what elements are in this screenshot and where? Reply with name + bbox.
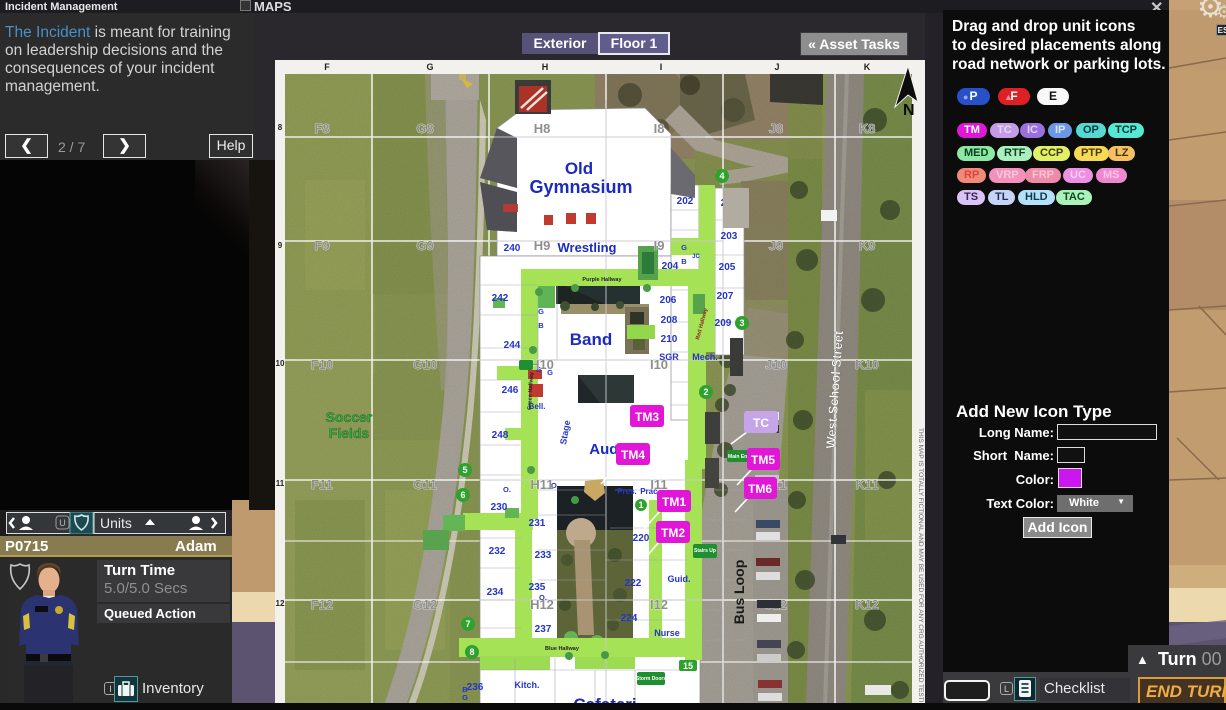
svg-text:I9: I9 [654, 238, 665, 253]
svg-text:Stairs Up: Stairs Up [694, 548, 716, 554]
svg-text:I12: I12 [650, 597, 668, 612]
svg-text:Band: Band [570, 330, 613, 349]
svg-text:H9: H9 [534, 238, 551, 253]
svg-text:Old: Old [565, 159, 593, 178]
svg-text:TM4: TM4 [621, 448, 645, 462]
svg-text:F12: F12 [311, 597, 333, 612]
svg-text:4: 4 [719, 171, 724, 181]
svg-text:B: B [681, 257, 687, 266]
svg-text:H8: H8 [534, 121, 551, 136]
svg-text:231: 231 [529, 518, 546, 529]
svg-text:Purple Hallway: Purple Hallway [582, 277, 622, 283]
svg-text:F9: F9 [314, 238, 329, 253]
svg-text:G: G [538, 307, 544, 316]
svg-text:235: 235 [529, 582, 546, 593]
svg-text:230: 230 [491, 502, 508, 513]
svg-text:1: 1 [638, 500, 643, 510]
svg-text:Gymnasium: Gymnasium [529, 177, 632, 197]
svg-text:220: 220 [633, 533, 650, 544]
svg-text:G: G [681, 243, 687, 252]
svg-text:5: 5 [462, 465, 467, 475]
svg-text:F11: F11 [311, 477, 333, 492]
svg-text:209: 209 [715, 318, 732, 329]
svg-text:K8: K8 [859, 121, 876, 136]
svg-text:K11: K11 [855, 477, 878, 492]
svg-text:H12: H12 [530, 597, 554, 612]
svg-text:N: N [903, 102, 915, 119]
svg-text:TM3: TM3 [635, 410, 659, 424]
svg-text:F10: F10 [311, 357, 333, 372]
svg-text:15: 15 [683, 661, 693, 671]
svg-text:11: 11 [276, 479, 285, 488]
svg-text:203: 203 [721, 231, 738, 242]
svg-text:TC: TC [753, 416, 769, 430]
svg-text:G: G [462, 693, 468, 702]
svg-text:8: 8 [469, 647, 474, 657]
svg-text:U: U [59, 518, 66, 528]
svg-text:222: 222 [625, 578, 642, 589]
svg-text:Storm Doors: Storm Doors [636, 676, 667, 682]
svg-text:205: 205 [719, 262, 736, 273]
svg-text:J9: J9 [769, 238, 783, 253]
svg-text:H11: H11 [530, 477, 553, 492]
svg-text:K: K [864, 62, 871, 72]
svg-text:K10: K10 [855, 357, 879, 372]
svg-text:B: B [462, 685, 468, 694]
svg-text:206: 206 [660, 295, 677, 306]
svg-text:10: 10 [276, 359, 285, 368]
svg-text:Wrestling: Wrestling [558, 240, 617, 255]
svg-text:K12: K12 [855, 597, 879, 612]
svg-text:Soccer: Soccer [326, 409, 373, 425]
svg-text:233: 233 [535, 550, 552, 561]
svg-text:8: 8 [278, 123, 283, 132]
svg-text:Pres.: Pres. [617, 487, 637, 496]
svg-text:TM6: TM6 [748, 482, 772, 496]
svg-text:224: 224 [621, 613, 638, 624]
svg-text:244: 244 [504, 340, 521, 351]
svg-text:G10: G10 [413, 357, 438, 372]
svg-text:Units: Units [100, 515, 132, 531]
svg-text:I8: I8 [654, 121, 665, 136]
svg-text:TM1: TM1 [662, 495, 686, 509]
svg-text:JC: JC [692, 254, 700, 260]
svg-text:G: G [426, 62, 433, 72]
svg-text:G12: G12 [413, 597, 438, 612]
svg-text:TM2: TM2 [661, 526, 685, 540]
svg-text:9: 9 [278, 241, 283, 250]
svg-text:Blue Hallway: Blue Hallway [545, 646, 580, 652]
svg-text:J10: J10 [765, 357, 787, 372]
svg-text:3: 3 [739, 318, 744, 328]
svg-text:202: 202 [677, 196, 694, 207]
svg-text:242: 242 [492, 293, 509, 304]
svg-text:234: 234 [487, 587, 504, 598]
svg-text:G9: G9 [416, 238, 433, 253]
svg-text:207: 207 [717, 291, 734, 302]
svg-text:236: 236 [467, 682, 484, 693]
svg-text:J: J [774, 62, 779, 72]
svg-text:204: 204 [662, 261, 679, 272]
svg-text:210: 210 [661, 334, 678, 345]
svg-text:O.: O. [503, 485, 511, 494]
svg-text:J8: J8 [769, 121, 783, 136]
svg-text:Mech.: Mech. [692, 352, 718, 362]
svg-text:THIS MAP IS TOTALLY FICTIONAL: THIS MAP IS TOTALLY FICTIONAL AND MAY BE… [917, 428, 924, 705]
svg-text:7: 7 [465, 619, 470, 629]
svg-text:12: 12 [276, 599, 285, 608]
svg-text:I10: I10 [650, 357, 668, 372]
svg-text:H: H [542, 62, 549, 72]
svg-text:G11: G11 [413, 477, 437, 492]
svg-text:Guid.: Guid. [668, 574, 691, 584]
svg-text:F8: F8 [314, 121, 329, 136]
svg-text:246: 246 [502, 385, 519, 396]
svg-text:K9: K9 [859, 238, 876, 253]
svg-text:Kitch.: Kitch. [514, 680, 539, 690]
svg-text:232: 232 [489, 546, 506, 557]
svg-text:F: F [324, 62, 330, 72]
svg-text:2: 2 [703, 387, 708, 397]
svg-text:6: 6 [460, 490, 465, 500]
svg-text:Fields: Fields [329, 425, 370, 441]
svg-text:TM5: TM5 [751, 453, 775, 467]
svg-text:208: 208 [661, 315, 678, 326]
svg-text:B: B [538, 321, 544, 330]
svg-text:248: 248 [492, 430, 509, 441]
svg-text:Bus Loop: Bus Loop [731, 560, 747, 625]
svg-text:H10: H10 [530, 357, 554, 372]
svg-text:237: 237 [535, 624, 552, 635]
svg-text:I11: I11 [650, 477, 667, 492]
svg-text:I: I [660, 62, 663, 72]
svg-text:Nurse: Nurse [654, 628, 680, 638]
svg-text:240: 240 [504, 243, 521, 254]
svg-text:G8: G8 [416, 121, 433, 136]
